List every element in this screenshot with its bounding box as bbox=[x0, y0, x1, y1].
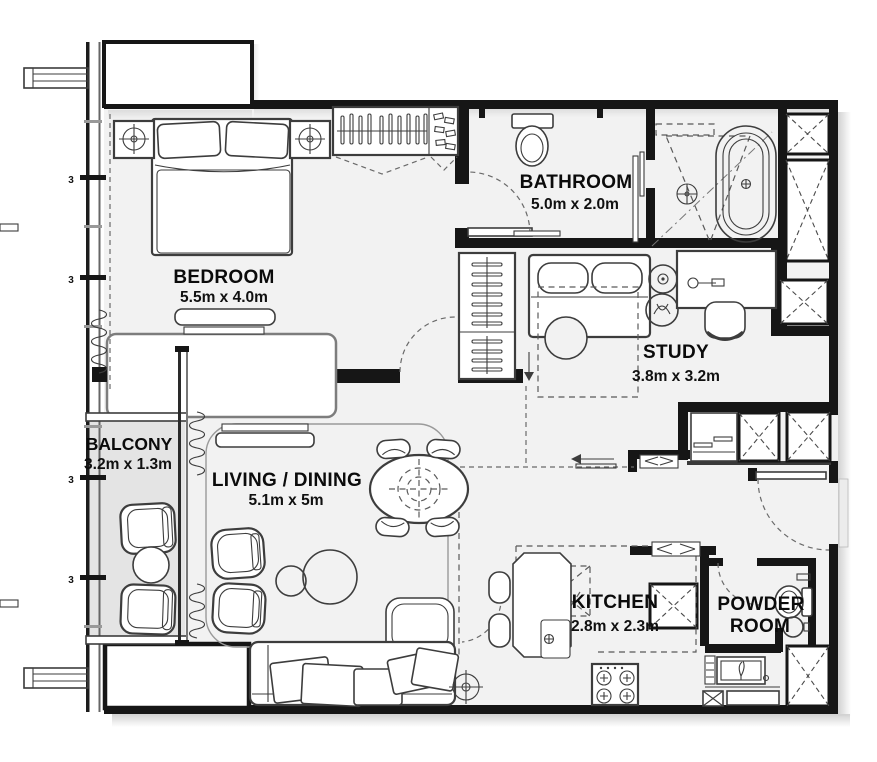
powder-room-label-line1: POWDER bbox=[717, 594, 804, 615]
wall-powder-north-l bbox=[709, 558, 723, 566]
wall-hook bbox=[479, 109, 485, 118]
towel-rail bbox=[514, 231, 560, 236]
mullion-tag: 3 bbox=[68, 175, 74, 186]
study-dimensions: 3.8m x 3.2m bbox=[632, 368, 720, 385]
facade-stub bbox=[0, 224, 18, 231]
stove bbox=[592, 664, 638, 705]
mullion-tick bbox=[80, 275, 106, 280]
nightstand-left bbox=[114, 121, 154, 158]
shaft-box bbox=[780, 280, 828, 324]
bed bbox=[152, 119, 292, 255]
balcony-table bbox=[133, 547, 169, 583]
stool bbox=[489, 614, 510, 647]
stool bbox=[489, 572, 510, 603]
nightstand-right bbox=[290, 121, 330, 158]
entry-door-leaf bbox=[756, 472, 826, 479]
shaft-box-small bbox=[703, 691, 723, 706]
balcony-chair bbox=[120, 584, 176, 635]
mullion-tag: 3 bbox=[68, 575, 74, 586]
tv-console-living bbox=[216, 424, 314, 447]
cushion bbox=[538, 263, 588, 293]
floor-plan-canvas: 3 3 3 3 bbox=[0, 0, 877, 762]
coat-closet-slider bbox=[640, 455, 678, 468]
wall-powder-west bbox=[700, 554, 709, 646]
study-label: STUDY bbox=[643, 342, 709, 363]
wall-bedroom-door-stub bbox=[336, 369, 400, 383]
mullion-tick bbox=[80, 575, 106, 580]
balcony-label: BALCONY bbox=[86, 434, 173, 454]
mullion-tick bbox=[80, 175, 106, 180]
mullion-tick bbox=[80, 475, 106, 480]
powder-room-label-line2: ROOM bbox=[730, 616, 790, 637]
dining-chair bbox=[375, 517, 409, 537]
balcony-sill-bottom bbox=[86, 636, 187, 644]
wall-vestibule-step-v bbox=[628, 450, 637, 472]
structure-top-left bbox=[104, 42, 252, 106]
kitchen-pocket-door bbox=[652, 542, 700, 556]
balcony-dimensions: 3.2m x 1.3m bbox=[84, 456, 172, 473]
bedroom-label: BEDROOM bbox=[173, 267, 274, 288]
entry-threshold bbox=[839, 479, 848, 547]
wall-hall-south bbox=[455, 238, 780, 248]
shaft-box bbox=[787, 646, 829, 706]
shaft-box bbox=[786, 160, 829, 261]
tv-console-bedroom bbox=[175, 309, 275, 334]
armchair bbox=[212, 583, 266, 635]
facade-stub bbox=[0, 600, 18, 607]
kitchen-dimensions: 2.8m x 2.3m bbox=[571, 618, 659, 635]
living-dining-dimensions: 5.1m x 5m bbox=[249, 492, 324, 509]
wall-bath-partition-top bbox=[646, 100, 655, 160]
wall-laundry-north bbox=[705, 644, 781, 653]
floor-plan: 3 3 3 3 bbox=[0, 0, 877, 762]
pillow bbox=[157, 121, 221, 158]
wall-study-shaft-south bbox=[771, 326, 838, 336]
shaft-box bbox=[787, 412, 830, 461]
mullion-tag: 3 bbox=[68, 475, 74, 486]
wall-hook bbox=[597, 109, 603, 118]
shaft-box bbox=[786, 114, 829, 154]
mullion-tag: 3 bbox=[68, 275, 74, 286]
kitchen-label: KITCHEN bbox=[572, 592, 659, 613]
facade-fin-bottom bbox=[24, 668, 88, 688]
dining-chair bbox=[376, 439, 410, 459]
desk-chair bbox=[705, 302, 745, 340]
study-sofa bbox=[529, 255, 650, 337]
dining-chair bbox=[425, 517, 459, 537]
hall-closet bbox=[459, 253, 515, 379]
pouf bbox=[545, 317, 587, 359]
pillow bbox=[411, 648, 459, 692]
dining-chair bbox=[426, 439, 460, 459]
armchair bbox=[210, 527, 265, 580]
wall-bath-partition-bottom bbox=[646, 188, 655, 248]
wall-powder-north-r bbox=[757, 558, 814, 566]
cushion bbox=[592, 263, 642, 293]
bathroom-dimensions: 5.0m x 2.0m bbox=[531, 196, 619, 213]
doormat bbox=[727, 691, 779, 705]
sink bbox=[541, 620, 570, 658]
balcony-sill-top bbox=[86, 413, 187, 421]
shaft-box bbox=[739, 413, 779, 461]
pillow bbox=[225, 121, 289, 158]
desk bbox=[677, 251, 776, 308]
bathroom-label: BATHROOM bbox=[520, 172, 633, 193]
dining-table bbox=[370, 455, 468, 523]
structure-bottom-left bbox=[105, 644, 249, 708]
entry-closet bbox=[691, 413, 737, 461]
structure-divider bbox=[92, 334, 336, 417]
bedroom-dimensions: 5.5m x 4.0m bbox=[180, 289, 268, 306]
facade-fin-top bbox=[24, 68, 88, 88]
living-dining-label: LIVING / DINING bbox=[212, 470, 362, 491]
